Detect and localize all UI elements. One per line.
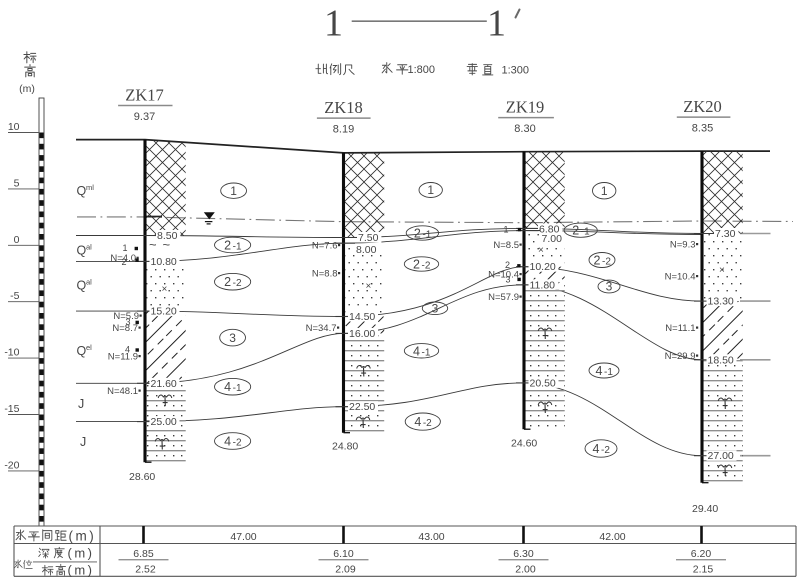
svg-text:N=57.9: N=57.9 (488, 292, 519, 303)
svg-text:(m): (m) (68, 546, 95, 561)
svg-text:22.50: 22.50 (349, 401, 375, 413)
svg-text:7.50: 7.50 (358, 232, 379, 244)
svg-text:~: ~ (149, 237, 157, 252)
svg-text:1:300: 1:300 (502, 65, 530, 77)
svg-text:42.00: 42.00 (599, 531, 625, 543)
svg-text:3: 3 (125, 317, 130, 327)
svg-text:(m): (m) (19, 83, 35, 95)
svg-text:2: 2 (594, 254, 601, 268)
svg-text:25.00: 25.00 (151, 416, 177, 428)
svg-text:6.20: 6.20 (691, 548, 712, 560)
svg-text:ZK20: ZK20 (683, 97, 722, 116)
svg-text:-2: -2 (233, 438, 242, 449)
svg-text:2: 2 (224, 239, 231, 253)
svg-text:N=34.7: N=34.7 (306, 323, 337, 334)
svg-text:16.00: 16.00 (349, 328, 375, 340)
svg-text:al: al (86, 243, 92, 252)
svg-text:-15: -15 (4, 403, 19, 415)
svg-text:×: × (366, 281, 372, 292)
svg-text:2: 2 (572, 224, 579, 238)
svg-text:3: 3 (505, 274, 510, 284)
svg-text:8.00: 8.00 (356, 244, 377, 256)
svg-text:10: 10 (8, 121, 20, 133)
svg-text:N=8.8: N=8.8 (312, 269, 338, 280)
svg-text:-1: -1 (581, 227, 590, 238)
svg-text:ZK18: ZK18 (324, 98, 363, 117)
svg-text:28.60: 28.60 (129, 471, 155, 483)
svg-text:29.40: 29.40 (692, 503, 718, 515)
svg-text:-2: -2 (423, 418, 432, 429)
svg-text:×: × (538, 245, 544, 256)
svg-text:J: J (78, 397, 84, 411)
svg-text:×: × (162, 284, 168, 295)
svg-text:2.15: 2.15 (693, 564, 714, 576)
svg-text:N=7.6: N=7.6 (312, 241, 338, 252)
svg-text:8.50: 8.50 (157, 230, 178, 242)
svg-text:Q: Q (77, 244, 87, 258)
svg-text:24.80: 24.80 (332, 441, 358, 453)
svg-text:4: 4 (414, 415, 421, 429)
svg-text:N=48.1: N=48.1 (107, 386, 138, 397)
svg-text:3: 3 (432, 302, 439, 316)
svg-text:47.00: 47.00 (230, 531, 256, 543)
svg-text:15.20: 15.20 (151, 306, 177, 318)
svg-text:-1: -1 (233, 383, 242, 394)
svg-text:6.85: 6.85 (133, 548, 154, 560)
svg-text:-2: -2 (422, 261, 431, 272)
svg-text:-1: -1 (604, 367, 613, 378)
svg-text:-2: -2 (601, 445, 610, 456)
svg-text:Q: Q (77, 184, 87, 198)
svg-text:-2: -2 (233, 278, 242, 289)
svg-text:el: el (86, 343, 92, 352)
svg-text:2.00: 2.00 (515, 564, 536, 576)
svg-text:43.00: 43.00 (418, 531, 444, 543)
svg-text:4: 4 (596, 364, 603, 378)
svg-text:1: 1 (122, 243, 127, 253)
svg-text:7.30: 7.30 (715, 228, 736, 240)
svg-text:4: 4 (125, 345, 130, 355)
svg-text:8.30: 8.30 (514, 123, 535, 135)
svg-text:9.37: 9.37 (134, 111, 155, 123)
svg-text:3: 3 (606, 280, 613, 294)
svg-text:-1: -1 (233, 242, 242, 253)
svg-text:ZK19: ZK19 (506, 97, 545, 116)
svg-text:1: 1 (487, 3, 506, 45)
svg-text:-1: -1 (422, 347, 431, 358)
svg-text:2: 2 (414, 227, 421, 241)
svg-text:10.80: 10.80 (151, 256, 177, 268)
svg-text:J: J (80, 435, 86, 449)
svg-text:2.52: 2.52 (135, 564, 156, 576)
svg-text:7.00: 7.00 (542, 233, 563, 245)
svg-text:1: 1 (324, 3, 343, 45)
svg-text:14.50: 14.50 (349, 311, 375, 323)
svg-text:N=10.4: N=10.4 (665, 272, 696, 283)
svg-text:1: 1 (230, 184, 237, 198)
svg-text:1: 1 (427, 183, 434, 197)
svg-text:-1: -1 (422, 230, 431, 241)
svg-text:-10: -10 (4, 347, 19, 359)
svg-text:1: 1 (503, 225, 508, 235)
svg-text:ml: ml (86, 183, 94, 192)
svg-text:0: 0 (14, 234, 20, 246)
svg-text:13.30: 13.30 (708, 296, 734, 308)
svg-text:6.30: 6.30 (513, 548, 534, 560)
svg-text:8.35: 8.35 (692, 123, 713, 135)
svg-text:-20: -20 (4, 459, 19, 471)
svg-text:18.50: 18.50 (708, 354, 734, 366)
svg-text:4: 4 (224, 435, 231, 449)
svg-text:1: 1 (601, 184, 608, 198)
svg-text:×: × (719, 265, 725, 276)
svg-text:N=29.9: N=29.9 (665, 351, 696, 362)
svg-text:(m): (m) (69, 529, 97, 544)
svg-text:21.60: 21.60 (151, 378, 177, 390)
svg-text:2: 2 (121, 257, 126, 267)
svg-text:-5: -5 (10, 290, 19, 302)
svg-text:N=10.4: N=10.4 (488, 270, 519, 281)
svg-text:27.00: 27.00 (708, 450, 734, 462)
svg-text:6.10: 6.10 (333, 548, 354, 560)
svg-text:24.60: 24.60 (511, 438, 537, 450)
svg-text:N=11.9: N=11.9 (108, 352, 138, 363)
svg-text:5: 5 (14, 177, 20, 189)
svg-text:8.19: 8.19 (333, 124, 354, 136)
svg-text:4: 4 (413, 344, 420, 358)
svg-text:(m): (m) (68, 563, 95, 578)
svg-text:20.50: 20.50 (530, 377, 556, 389)
svg-text:4: 4 (224, 380, 231, 394)
svg-text:2: 2 (224, 275, 231, 289)
svg-text:-2: -2 (602, 257, 611, 268)
svg-text:Q: Q (77, 279, 87, 293)
svg-text:Q: Q (77, 344, 87, 358)
svg-text:ZK17: ZK17 (125, 85, 164, 104)
svg-text:2.09: 2.09 (335, 564, 356, 576)
svg-text:N=11.1: N=11.1 (665, 323, 695, 334)
svg-text:2: 2 (505, 260, 510, 270)
svg-text:3: 3 (229, 331, 236, 345)
svg-text:4: 4 (593, 442, 600, 456)
svg-text:11.80: 11.80 (530, 279, 556, 291)
svg-text:1:800: 1:800 (408, 64, 436, 76)
svg-text:N=9.3: N=9.3 (670, 240, 696, 251)
svg-text:2: 2 (413, 258, 420, 272)
svg-text:N=8.5: N=8.5 (493, 240, 519, 251)
svg-text:al: al (86, 278, 92, 287)
svg-text:10.20: 10.20 (530, 261, 556, 273)
